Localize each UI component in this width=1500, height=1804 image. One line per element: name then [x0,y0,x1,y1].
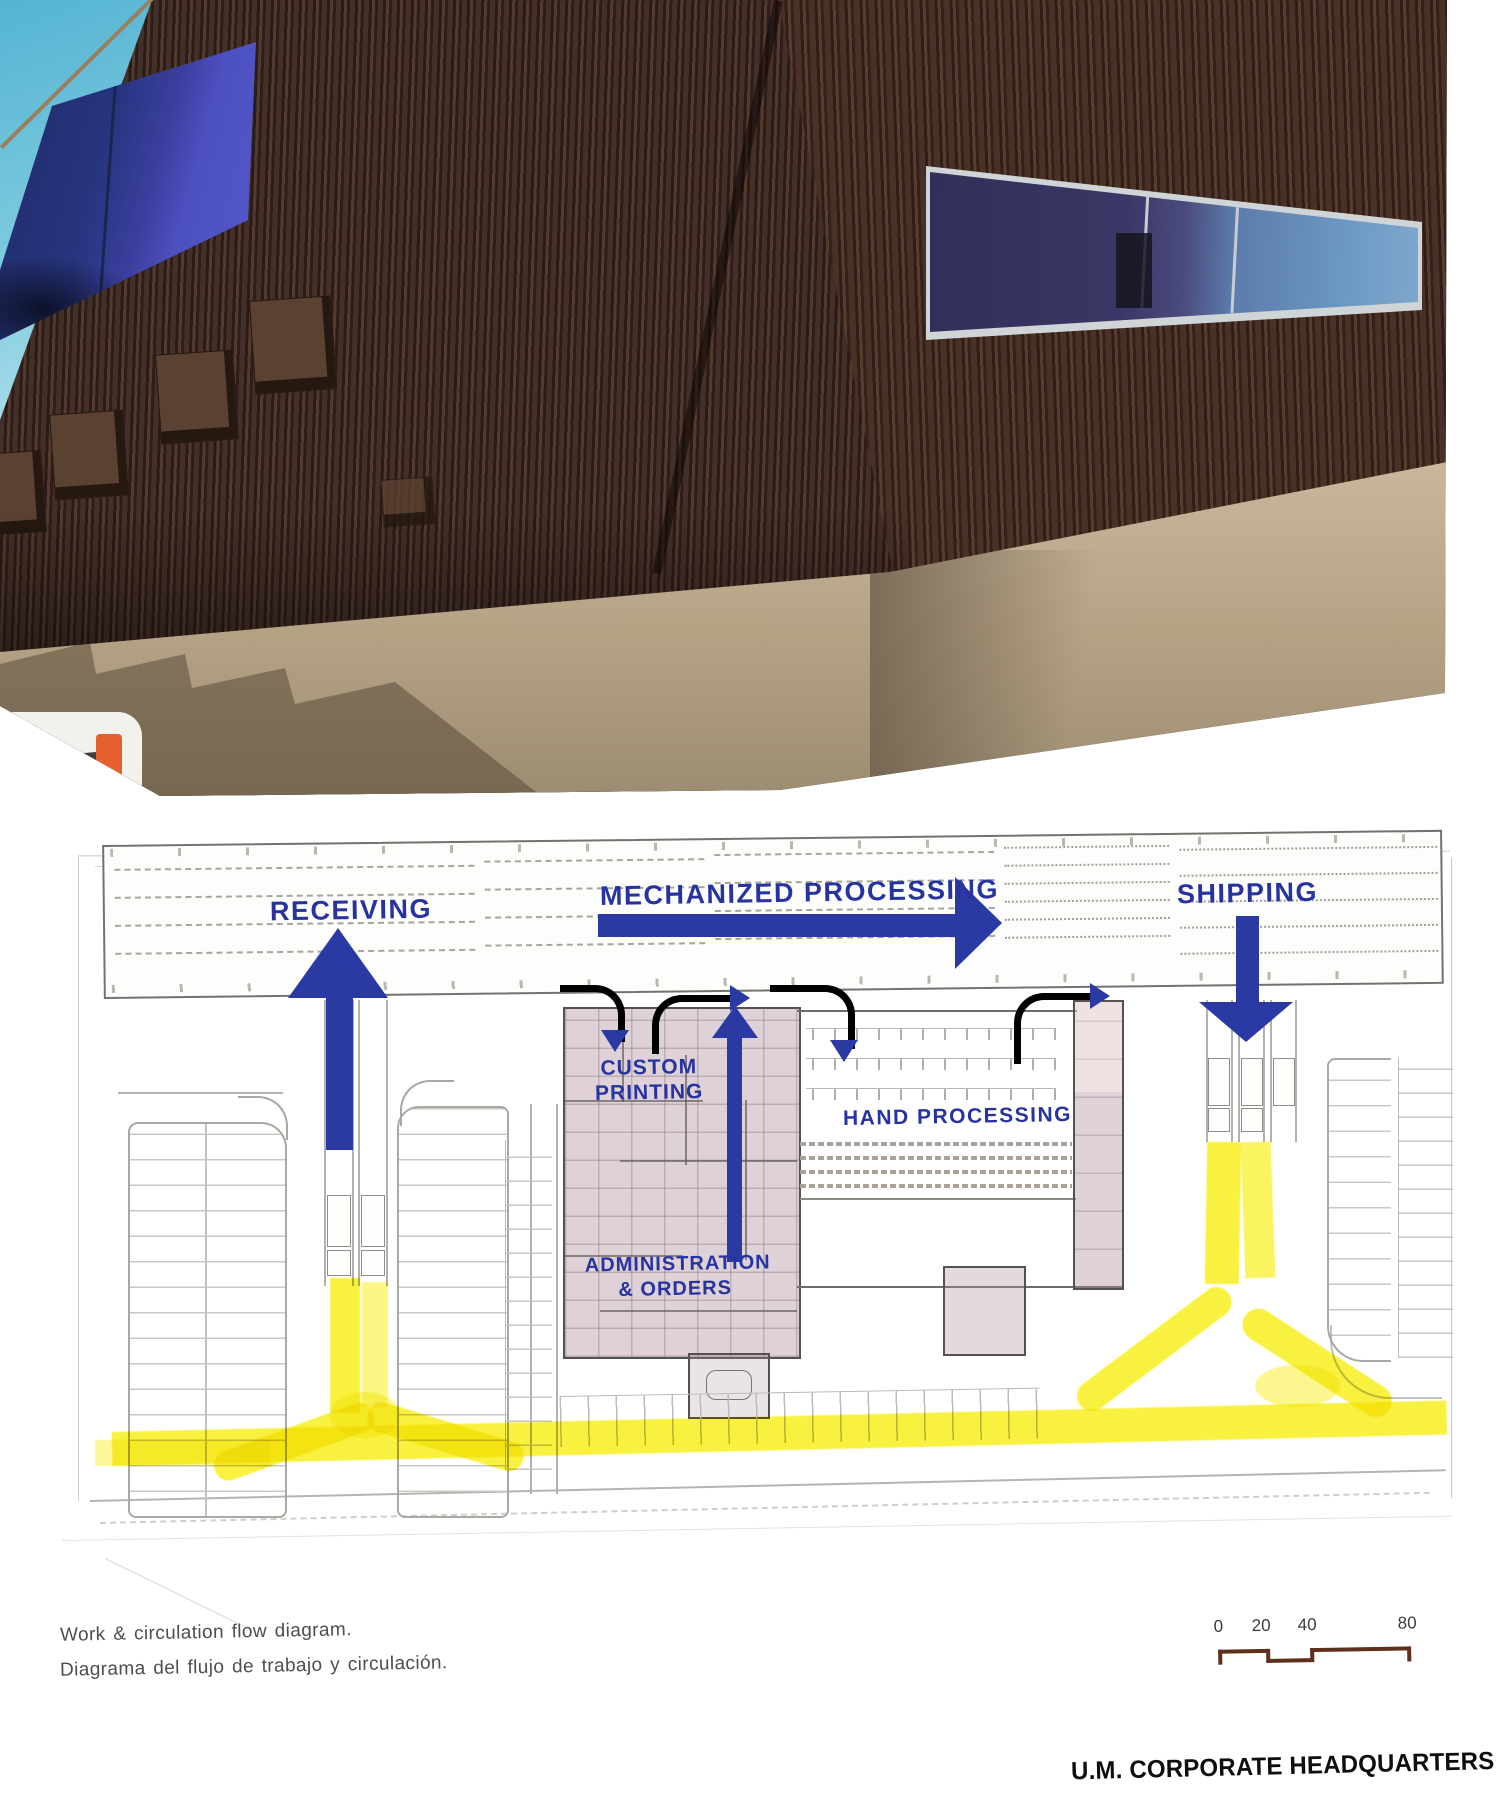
scale-tick-label: 80 [1398,1613,1417,1633]
flow-arrowhead-down [601,1030,629,1052]
custom-printing-label: CUSTOM PRINTING [588,1054,711,1106]
work-bench [800,1170,1072,1174]
window-glass [926,138,1422,348]
curb-line [118,1092,283,1094]
dock-lane-line [358,1000,360,1286]
truck-cab [327,1250,351,1276]
flow-arrowhead-right [1090,983,1110,1009]
rack-row [484,858,704,862]
rack-row [1005,917,1170,921]
truck-trailer [1241,1058,1263,1106]
mechanized-arrow-body [598,914,955,937]
right-ribbon-window [926,138,1422,348]
flow-elbow-to-shipping-wing [1014,993,1097,1064]
work-bench-edge [800,1198,1076,1200]
chimney-reflection [1116,233,1152,308]
administration-orders-label: ADMINISTRATION & ORDERS [585,1250,766,1303]
administration-line2: & ORDERS [585,1275,765,1303]
white-van [0,712,142,797]
vent-box [249,295,337,394]
truck-route-highlight [1205,1142,1241,1285]
truck-route-highlight [362,1282,388,1407]
scale-tick-label: 0 [1214,1617,1224,1637]
truck-cab [1241,1108,1263,1132]
scale-tick-label: 40 [1298,1615,1317,1635]
truck-trailer [327,1195,351,1247]
scale-end-tick [1407,1646,1411,1661]
vent-box [155,349,239,444]
desk-row [806,1088,1056,1100]
rack-row [1180,924,1438,929]
scale-bar: 0 20 40 80 [1208,1613,1429,1672]
truck-cab [361,1250,385,1276]
parking-lot [1327,1058,1391,1362]
truck-cab [1208,1108,1230,1132]
window-mullion [1230,178,1240,313]
truck-trailer [1208,1058,1230,1106]
rack-row [114,865,474,871]
office-partition [620,1160,797,1162]
receiving-arrow-stem [326,998,353,1150]
rack-row [1005,935,1170,939]
rack-row [1004,863,1169,867]
receiving-label: RECEIVING [270,894,433,928]
scale-segment [1266,1658,1312,1663]
rack-row [1180,950,1438,955]
admin-arrow-head [712,1006,758,1038]
book-page: RECEIVING MECHANIZED PROCESSING SHIPPING… [0,0,1500,1804]
sketch-stray-line [105,1558,249,1629]
rack-row [714,851,994,856]
truck-trailer [1273,1058,1295,1106]
parking-stalls [505,1140,552,1470]
road-highlight-tail [95,1440,270,1466]
work-bench [800,1142,1072,1146]
hand-processing-label: HAND PROCESSING [843,1102,1072,1131]
mechanized-processing-label: MECHANIZED PROCESSING [600,875,950,912]
shipping-arrow-head [1199,1002,1293,1042]
dock-lane-line [386,1000,388,1286]
dock-lane-line [1295,1000,1297,1142]
scale-segment [1310,1646,1410,1652]
custom-printing-line1: CUSTOM [588,1054,710,1081]
curb-hook [400,1080,454,1126]
office-partition [745,1100,747,1260]
van-windshield [0,752,96,797]
parking-stalls [1398,1058,1453,1358]
rack-row [1005,899,1170,903]
scale-end-tick [1218,1650,1222,1665]
office-annex [943,1266,1026,1356]
rack-row [1179,846,1437,851]
truck-route-highlight [1241,1142,1276,1279]
custom-printing-line2: PRINTING [588,1079,710,1106]
scale-tick-label: 20 [1252,1616,1271,1636]
work-bench [800,1156,1072,1160]
scale-segment [1218,1649,1268,1654]
curb-hook [238,1096,288,1140]
building-photo [0,0,1447,797]
vent-box [49,410,129,501]
plan-boundary-left [78,856,79,1501]
corner-shadow [870,550,1210,797]
truck-route-highlight [1255,1365,1340,1407]
flow-arrowhead-down [830,1040,858,1062]
shipping-label: SHIPPING [1175,877,1321,911]
project-title-footer: U.M. CORPORATE HEADQUARTERS [1071,1748,1456,1786]
shipping-arrow-stem [1236,916,1259,1004]
van-light-bar [96,734,122,797]
truck-route-highlight [1071,1281,1238,1417]
caption-english: Work & circulation flow diagram. [60,1619,352,1647]
rack-row [1005,881,1170,885]
office-partition [600,1310,797,1312]
administration-line1: ADMINISTRATION [585,1250,765,1278]
rack-row [485,942,705,946]
work-bench [800,1184,1072,1188]
receiving-arrow-head [288,928,388,998]
caption-spanish: Diagrama del flujo de trabajo y circulac… [60,1652,448,1681]
admin-arrow-stem [727,1038,742,1262]
truck-trailer [361,1195,385,1247]
